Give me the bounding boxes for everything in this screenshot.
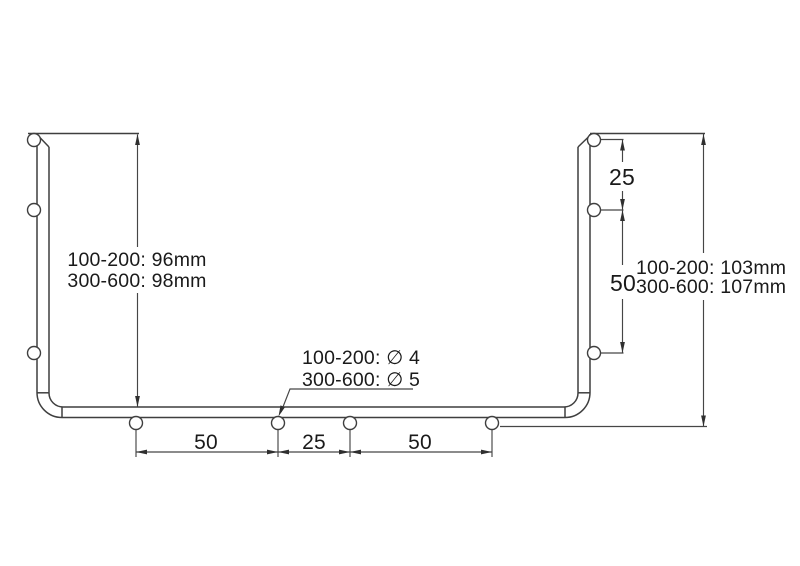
arrow-left-icon: [278, 450, 289, 455]
diameter-leader-line: [281, 389, 413, 412]
right-spacing-25-label: 25: [609, 164, 635, 190]
arrow-up-icon: [620, 140, 625, 151]
arrow-right-icon: [481, 450, 492, 455]
right-spacing-50-label: 50: [610, 270, 636, 296]
left-corner-inner: [49, 393, 63, 407]
hole-diameter-label-line2: 300-600: ∅ 5: [302, 369, 420, 391]
arrow-left-icon: [350, 450, 361, 455]
drawing-canvas: 100-200: 96mm 300-600: 98mm 100-200: 103…: [0, 0, 800, 566]
bottom-spacing-50-left-label: 50: [194, 431, 218, 454]
bottom-spacing-25-label: 25: [302, 431, 326, 454]
left-wall-hole: [28, 204, 41, 217]
bottom-spacing-50-right-label: 50: [408, 431, 432, 454]
right-wall-hole: [588, 347, 601, 360]
bottom-hole: [130, 417, 143, 430]
arrow-up-icon: [620, 210, 625, 221]
arrow-up-icon: [701, 134, 706, 145]
arrow-right-icon: [267, 450, 278, 455]
arrow-down-icon: [135, 396, 140, 407]
bottom-hole: [486, 417, 499, 430]
right-corner-inner: [564, 393, 578, 407]
arrow-down-icon: [620, 342, 625, 353]
technical-drawing: 100-200: 96mm 300-600: 98mm 100-200: 103…: [0, 0, 800, 566]
labels: 100-200: 96mm 300-600: 98mm 100-200: 103…: [67, 164, 786, 454]
left-height-label-line1: 100-200: 96mm: [67, 249, 206, 271]
hole-diameter-label-line1: 100-200: ∅ 4: [302, 347, 420, 369]
right-height-label-line2: 300-600: 107mm: [636, 276, 786, 298]
bottom-hole: [272, 417, 285, 430]
left-wall-hole: [28, 134, 41, 147]
right-wall-hole: [588, 134, 601, 147]
left-height-label-line2: 300-600: 98mm: [67, 270, 206, 292]
left-wall-hole: [28, 347, 41, 360]
arrow-up-icon: [135, 134, 140, 145]
bottom-hole: [344, 417, 357, 430]
arrow-left-icon: [136, 450, 147, 455]
arrow-right-icon: [339, 450, 350, 455]
right-wall-hole: [588, 204, 601, 217]
arrow-down-icon: [701, 416, 706, 427]
arrow-down-icon: [620, 199, 625, 210]
